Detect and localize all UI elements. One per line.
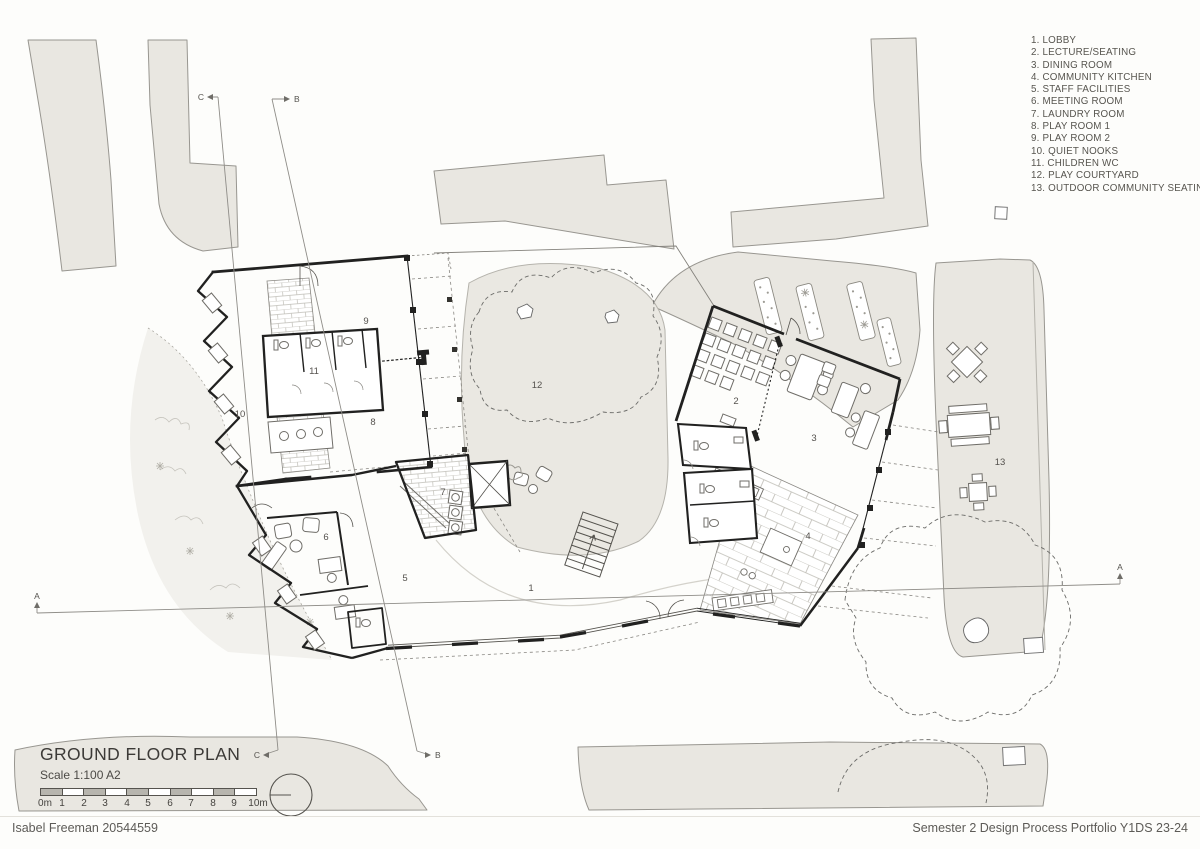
- author-credit: Isabel Freeman 20544559: [12, 821, 158, 835]
- legend-item: 3. DINING ROOM: [1031, 60, 1196, 72]
- scale-segment: [84, 789, 106, 795]
- legend-item: 9. PLAY ROOM 2: [1031, 133, 1196, 145]
- room-legend: 1. LOBBY 2. LECTURE/SEATING 3. DINING RO…: [1031, 35, 1196, 195]
- room-label-lobby: 1: [528, 583, 533, 594]
- context-block-south: [578, 742, 1048, 810]
- scale-segment: [192, 789, 214, 795]
- floor-plan-drawing: A A B B C C 1 2 3 4 5 6 7 8 9 10 11 12 1…: [0, 0, 1200, 849]
- room-label-outdoor-seating: 13: [995, 457, 1006, 468]
- room-label-play1: 8: [370, 417, 375, 428]
- portfolio-sheet: A A B B C C 1 2 3 4 5 6 7 8 9 10 11 12 1…: [0, 0, 1200, 849]
- wash-basins: [268, 417, 333, 453]
- scale-bar: [40, 788, 257, 796]
- scale-tick-label: 1: [59, 798, 65, 809]
- legend-item: 4. COMMUNITY KITCHEN: [1031, 72, 1196, 84]
- legend-item: 13. OUTDOOR COMMUNITY SEATING: [1031, 183, 1196, 195]
- legend-item: 8. PLAY ROOM 1: [1031, 121, 1196, 133]
- scale-tick-label: 9: [231, 798, 237, 809]
- room-label-laundry: 7: [440, 487, 445, 498]
- room-label-dining: 3: [811, 433, 816, 444]
- courtyard-soft-surface: [461, 263, 668, 555]
- context-block-northeast: [731, 38, 928, 247]
- context-planting-area: [652, 252, 920, 427]
- section-letter-a-right: A: [1117, 562, 1123, 572]
- room-label-meeting: 6: [323, 532, 328, 543]
- room-label-lecture: 2: [733, 396, 738, 407]
- visitor-wcs: [678, 424, 757, 546]
- room-label-quiet-nooks: 10: [235, 409, 246, 420]
- scale-tick-label: 4: [124, 798, 130, 809]
- scale-tick-label: 10m: [248, 798, 267, 809]
- room-label-kitchen: 4: [805, 531, 810, 542]
- section-letter-a-left: A: [34, 591, 40, 601]
- scale-segment: [214, 789, 236, 795]
- section-letter-b-bottom: B: [435, 750, 441, 760]
- scale-tick-label: 7: [188, 798, 194, 809]
- section-letter-c-top: C: [198, 92, 204, 102]
- context-east-strip: [934, 259, 1050, 657]
- portfolio-credit: Semester 2 Design Process Portfolio Y1DS…: [912, 821, 1188, 835]
- scale-segment: [127, 789, 149, 795]
- corridor-brick-floor: [267, 278, 315, 337]
- scale-segment: [235, 789, 256, 795]
- context-block-northwest-strip: [28, 40, 116, 271]
- legend-item: 12. PLAY COURTYARD: [1031, 170, 1196, 182]
- scale-segment: [149, 789, 171, 795]
- scale-segment: [171, 789, 193, 795]
- room-legend-list: 1. LOBBY 2. LECTURE/SEATING 3. DINING RO…: [1031, 35, 1196, 195]
- scale-bar-labels: 0m 1 2 3 4 5 6 7 8 9 10m: [40, 798, 268, 810]
- scale-tick-label: 8: [210, 798, 216, 809]
- scale-tick-label: 5: [145, 798, 151, 809]
- legend-item: 7. LAUNDRY ROOM: [1031, 109, 1196, 121]
- room-label-courtyard: 12: [532, 380, 543, 391]
- lectern: [720, 414, 736, 426]
- room-label-play2: 9: [363, 316, 368, 327]
- title-block: GROUND FLOOR PLAN Scale 1:100 A2 0m 1 2 …: [40, 744, 268, 810]
- scale-segment: [41, 789, 63, 795]
- elevator: [469, 461, 510, 508]
- lobby-glazed-wall: [386, 600, 697, 649]
- scale-segment: [106, 789, 128, 795]
- legend-item: 6. MEETING ROOM: [1031, 96, 1196, 108]
- room-label-children-wc: 11: [309, 366, 319, 377]
- children-wc: [263, 329, 383, 453]
- room-label-staff: 5: [402, 573, 407, 584]
- drawing-title: GROUND FLOOR PLAN: [40, 744, 268, 765]
- context-block-northwest-l: [148, 40, 238, 251]
- scale-note: Scale 1:100 A2: [40, 768, 268, 782]
- canopy-corner-dashed: [407, 253, 451, 269]
- scale-tick-label: 6: [167, 798, 173, 809]
- legend-item: 10. QUIET NOOKS: [1031, 146, 1196, 158]
- context-block-north-mid: [434, 155, 674, 249]
- legend-item: 2. LECTURE/SEATING: [1031, 47, 1196, 59]
- legend-item: 1. LOBBY: [1031, 35, 1196, 47]
- scale-tick-label: 3: [102, 798, 108, 809]
- scale-segment: [63, 789, 85, 795]
- legend-item: 5. STAFF FACILITIES: [1031, 84, 1196, 96]
- section-letter-b-top: B: [294, 94, 300, 104]
- staff-wc-fixture: [356, 618, 371, 627]
- scale-tick-label: 2: [81, 798, 87, 809]
- footer-divider: [0, 816, 1200, 817]
- legend-item: 11. CHILDREN WC: [1031, 158, 1196, 170]
- scale-tick-label: 0m: [38, 798, 52, 809]
